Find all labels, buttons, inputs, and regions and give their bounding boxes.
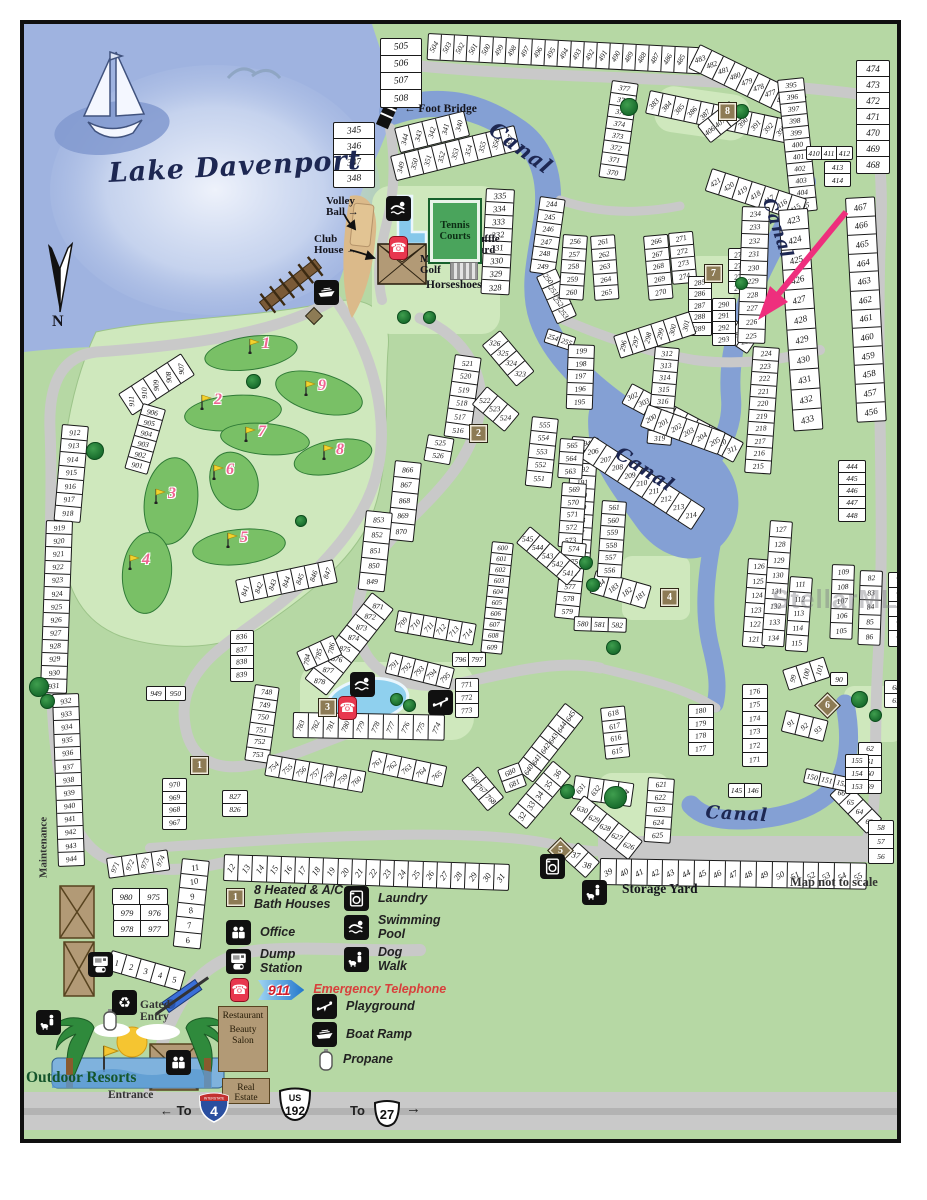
legend-item-label: Office xyxy=(260,926,295,940)
legend-item-label: 8 Heated & A/CBath Houses xyxy=(254,884,343,911)
restaurant-building-label: Beauty Salon xyxy=(230,1025,257,1046)
to-i4-label: ← To xyxy=(160,1104,192,1118)
legend-item: Propane xyxy=(318,1048,393,1072)
canal-label: Canal xyxy=(758,196,795,261)
tennis-courts: Tennis Courts xyxy=(428,198,482,264)
north-label: N xyxy=(52,314,64,331)
margin-left xyxy=(0,0,20,1200)
horseshoes-label: Horseshoes xyxy=(426,280,482,292)
legend-item: Office xyxy=(226,920,295,945)
svg-text:4: 4 xyxy=(210,1103,218,1119)
svg-text:US: US xyxy=(289,1093,302,1103)
outdoor-resorts-label: Outdoor Resorts xyxy=(26,1070,136,1086)
legend-item: DogWalk xyxy=(344,946,407,973)
propane-icon xyxy=(318,1048,334,1072)
to-27-arrow: → xyxy=(406,1102,421,1118)
dog-walk-icon xyxy=(344,947,369,972)
svg-text:192: 192 xyxy=(285,1104,305,1118)
gated-entry-label: Gated Entry xyxy=(140,1000,170,1024)
restaurant-building: RestaurantBeauty Salon xyxy=(218,1006,268,1072)
margin-right xyxy=(901,0,927,1200)
boat-ramp-icon xyxy=(312,1022,337,1047)
club-house-label: Club House → xyxy=(314,234,357,257)
canal-label: Canal xyxy=(705,804,768,826)
laundry-icon xyxy=(344,886,369,911)
legend-item: 18 Heated & A/CBath Houses xyxy=(226,884,343,911)
legend-item: Boat Ramp xyxy=(312,1022,412,1047)
to-27-label: To xyxy=(350,1104,365,1118)
legend-item-label: Propane xyxy=(343,1053,393,1067)
legend-item: Laundry xyxy=(344,886,427,911)
interstate-4-shield: INTERSTATE4 xyxy=(198,1090,230,1129)
legend-item-label: SwimmingPool xyxy=(378,914,441,941)
volley-ball-label: Volley Ball → xyxy=(326,196,359,219)
tennis-courts-label: Tennis Courts xyxy=(440,220,471,242)
foot-bridge-label: ← Foot Bridge xyxy=(404,104,477,116)
legend-item-label: DumpStation xyxy=(260,948,302,975)
legend-item-label: DogWalk xyxy=(378,946,407,973)
playground-icon xyxy=(312,994,337,1019)
dump-station-icon xyxy=(226,949,251,974)
legend-item-label: Laundry xyxy=(378,892,427,906)
legend-item-label: Playground xyxy=(346,1000,415,1014)
watermark: StellarMLS xyxy=(772,584,916,615)
lake-name-label: Lake Davenport xyxy=(108,147,362,188)
office-icon xyxy=(226,920,251,945)
canal-label: Canal xyxy=(485,118,556,178)
legend-item: Playground xyxy=(312,994,415,1019)
maintenance-label: Maintenance xyxy=(39,774,50,878)
map-not-to-scale-label: Map not to scale xyxy=(790,876,878,889)
entrance-label: Entrance xyxy=(108,1090,153,1102)
storage-yard-label: Storage Yard xyxy=(622,882,698,896)
margin-bottom xyxy=(0,1143,927,1200)
resort-map-page: 5055065075083453463473483443433423413403… xyxy=(0,0,927,1200)
legend-item: SwimmingPool xyxy=(344,914,441,941)
canal-label: Canal xyxy=(611,444,677,496)
phone-icon: ☎ xyxy=(230,978,249,1002)
us-192-shield: US192 xyxy=(276,1084,314,1131)
shuffle-board-courts xyxy=(450,262,478,280)
real-estate-building-label: Real Estate xyxy=(234,1083,257,1104)
margin-top xyxy=(0,0,927,20)
legend-item-label: Boat Ramp xyxy=(346,1028,412,1042)
legend-item: DumpStation xyxy=(226,948,302,975)
svg-text:INTERSTATE: INTERSTATE xyxy=(204,1097,225,1101)
us-27-shield: 27 xyxy=(372,1098,402,1135)
swimming-pool-icon xyxy=(344,915,369,940)
restaurant-building-label: Restaurant xyxy=(223,1011,264,1021)
svg-text:27: 27 xyxy=(380,1107,394,1122)
bath-house-marker: 1 xyxy=(226,888,245,907)
nine-one-one-badge: 911 xyxy=(258,980,304,1000)
